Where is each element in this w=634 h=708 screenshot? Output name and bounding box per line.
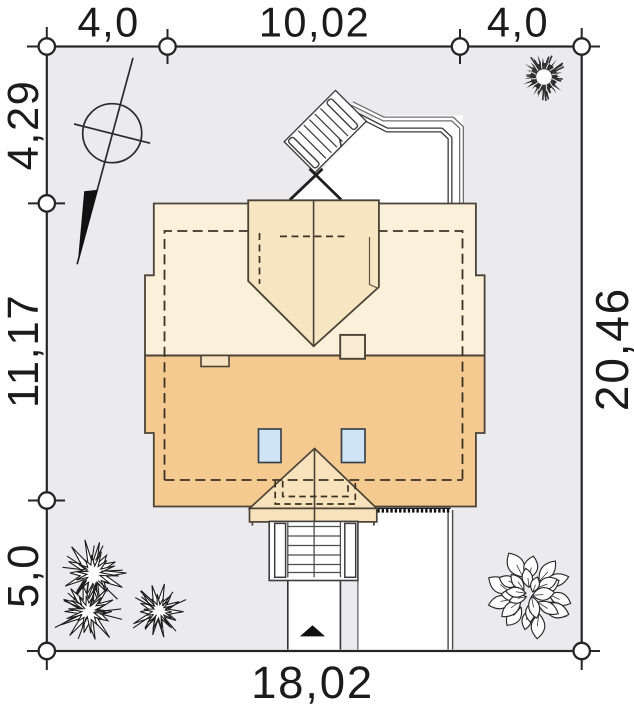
- svg-text:20,46: 20,46: [586, 287, 634, 411]
- svg-text:10,02: 10,02: [259, 0, 370, 46]
- svg-text:4,0: 4,0: [487, 0, 549, 45]
- svg-text:18,02: 18,02: [251, 657, 374, 708]
- svg-text:4,29: 4,29: [0, 80, 48, 171]
- svg-text:5,0: 5,0: [0, 543, 48, 608]
- svg-text:11,17: 11,17: [0, 294, 48, 408]
- svg-text:4,0: 4,0: [77, 0, 139, 45]
